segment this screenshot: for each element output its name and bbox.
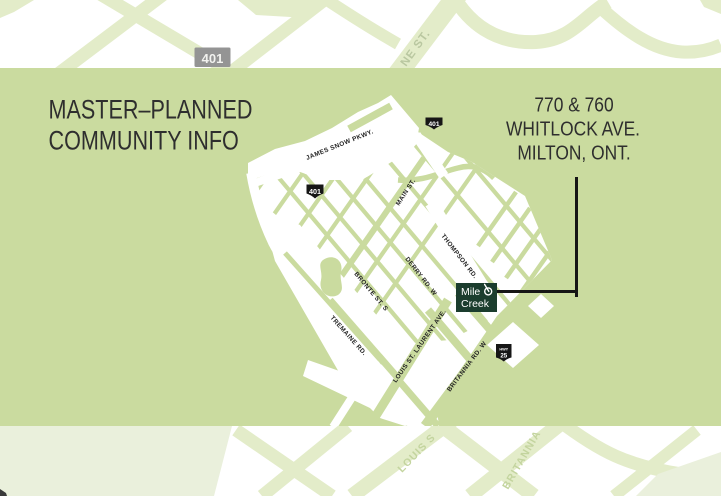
svg-text:HWY: HWY (499, 348, 508, 352)
svg-text:Mile: Mile (461, 286, 480, 298)
svg-text:770 & 760: 770 & 760 (534, 93, 613, 115)
svg-text:Creek: Creek (461, 298, 490, 310)
svg-text:401: 401 (202, 51, 224, 66)
svg-text:401: 401 (428, 121, 439, 128)
svg-text:MASTER–PLANNED: MASTER–PLANNED (49, 95, 253, 125)
svg-text:COMMUNITY INFO: COMMUNITY INFO (49, 126, 239, 156)
svg-text:401: 401 (309, 187, 321, 196)
svg-text:WHITLOCK AVE.: WHITLOCK AVE. (506, 117, 640, 139)
svg-text:MILTON, ONT.: MILTON, ONT. (517, 141, 630, 163)
svg-text:25: 25 (500, 353, 507, 360)
